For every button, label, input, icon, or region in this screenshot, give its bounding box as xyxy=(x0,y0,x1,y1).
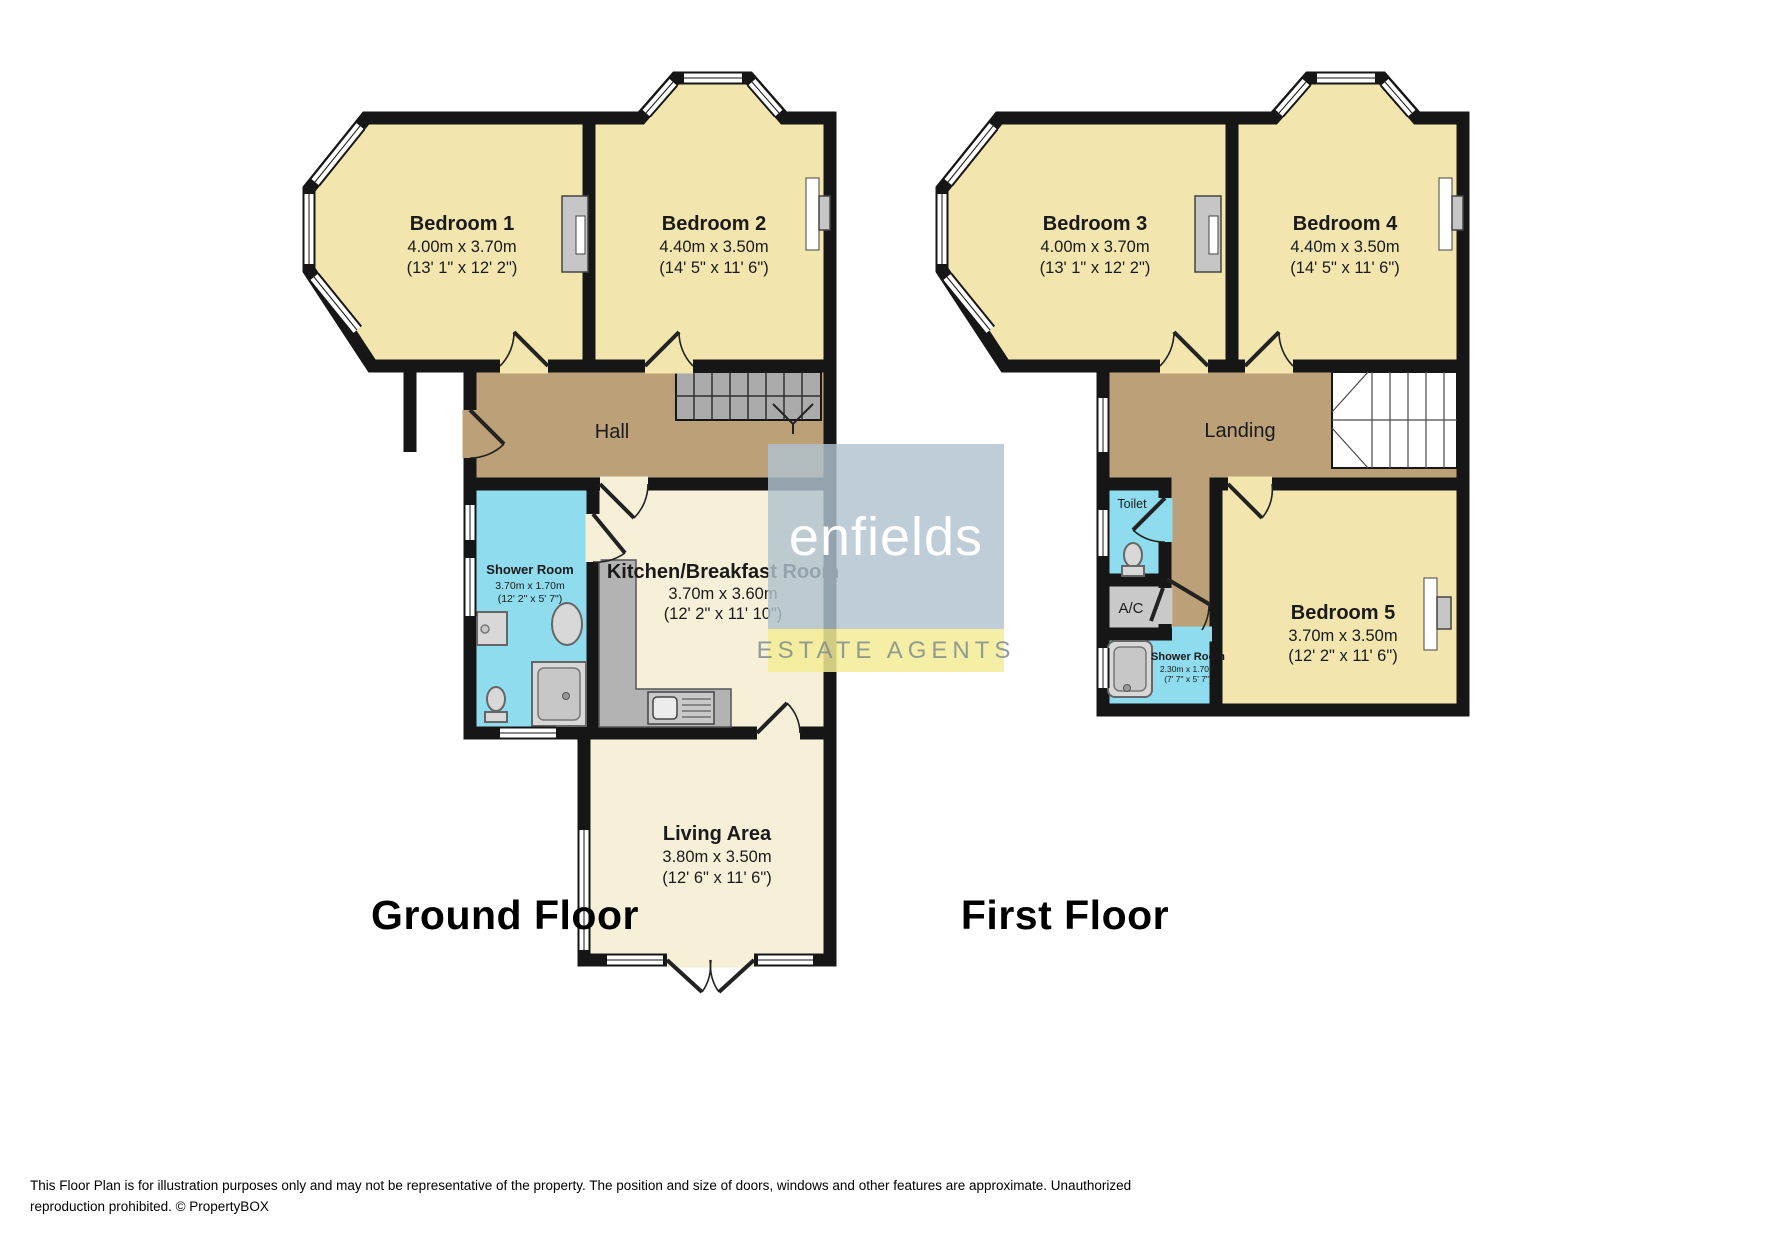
watermark-tagline: ESTATE AGENTS xyxy=(768,629,1004,672)
watermark-brand: enfields xyxy=(768,444,1004,629)
ground-floor-title: Ground Floor xyxy=(325,892,685,939)
svg-text:4.40m x 3.50m: 4.40m x 3.50m xyxy=(1290,238,1399,256)
label-toilet: Toilet xyxy=(1117,497,1147,511)
svg-text:3.70m x 1.70m: 3.70m x 1.70m xyxy=(495,580,565,592)
label-living: Living Area xyxy=(663,823,772,845)
svg-text:3.70m x 3.50m: 3.70m x 3.50m xyxy=(1288,627,1397,645)
svg-text:(14' 5" x 11' 6"): (14' 5" x 11' 6") xyxy=(659,259,768,277)
svg-text:(12' 2" x 11' 10"): (12' 2" x 11' 10") xyxy=(664,605,783,623)
stairs-first xyxy=(1332,372,1457,468)
label-landing: Landing xyxy=(1204,420,1275,442)
label-hall: Hall xyxy=(595,421,629,443)
chimney-recess-bed3 xyxy=(1195,196,1221,272)
watermark: enfields ESTATE AGENTS xyxy=(768,444,1004,672)
label-ac: A/C xyxy=(1118,600,1143,617)
label-bedroom-5: Bedroom 5 xyxy=(1291,602,1395,624)
floorplan-canvas: Bedroom 1 4.00m x 3.70m (13' 1" x 12' 2"… xyxy=(0,0,1771,1240)
chimney-recess-bed1 xyxy=(562,196,588,272)
basin xyxy=(552,603,582,645)
svg-text:(13' 1" x 12' 2"): (13' 1" x 12' 2") xyxy=(1040,259,1151,277)
wc-toilet xyxy=(487,687,505,711)
label-bedroom-3: Bedroom 3 xyxy=(1043,213,1147,235)
ground-floor-plan: Bedroom 1 4.00m x 3.70m (13' 1" x 12' 2"… xyxy=(309,78,839,992)
label-bedroom-1: Bedroom 1 xyxy=(410,213,514,235)
svg-text:(12' 2" x 5' 7"): (12' 2" x 5' 7") xyxy=(498,593,563,605)
first-floor-plan: Bedroom 3 4.00m x 3.70m (13' 1" x 12' 2"… xyxy=(942,78,1463,710)
svg-text:(12' 6" x 11' 6"): (12' 6" x 11' 6") xyxy=(662,869,771,887)
first-floor-title: First Floor xyxy=(885,892,1245,939)
svg-text:2.30m x 1.70m: 2.30m x 1.70m xyxy=(1160,664,1216,674)
label-shower-first: Shower Room xyxy=(1151,651,1225,663)
label-shower-ground: Shower Room xyxy=(486,562,573,577)
svg-text:4.00m x 3.70m: 4.00m x 3.70m xyxy=(407,238,516,256)
label-bedroom-4: Bedroom 4 xyxy=(1293,213,1398,235)
disclaimer-text: This Floor Plan is for illustration purp… xyxy=(30,1176,1158,1218)
svg-text:(13' 1" x 12' 2"): (13' 1" x 12' 2") xyxy=(407,259,518,277)
svg-text:(14' 5" x 11' 6"): (14' 5" x 11' 6") xyxy=(1290,259,1399,277)
svg-text:4.40m x 3.50m: 4.40m x 3.50m xyxy=(659,238,768,256)
svg-text:3.70m x 3.60m: 3.70m x 3.60m xyxy=(668,585,777,603)
svg-text:4.00m x 3.70m: 4.00m x 3.70m xyxy=(1040,238,1149,256)
svg-text:3.80m x 3.50m: 3.80m x 3.50m xyxy=(662,848,771,866)
toilet-fixture xyxy=(1122,543,1144,576)
svg-text:(7' 7" x 5' 7"): (7' 7" x 5' 7") xyxy=(1164,674,1212,684)
bath-fixture xyxy=(1108,641,1152,697)
label-bedroom-2: Bedroom 2 xyxy=(662,213,766,235)
svg-text:(12' 2" x 11' 6"): (12' 2" x 11' 6") xyxy=(1288,647,1397,665)
